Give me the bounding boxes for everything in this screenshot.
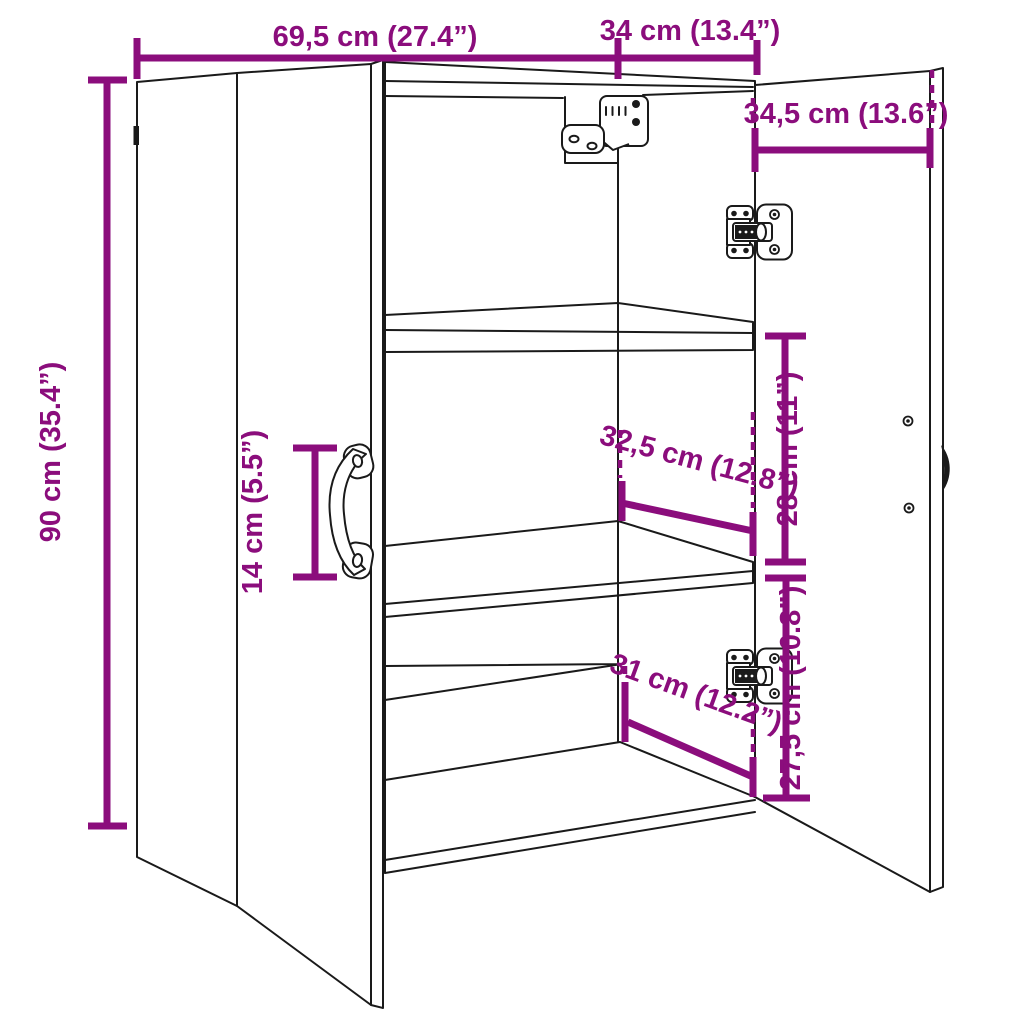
dim-height-label: 90 cm (35.4”): [35, 362, 67, 543]
cabinet-top-edge: [385, 62, 755, 98]
dim-top-right-width-label: 34 cm (13.4”): [600, 15, 781, 47]
product-dimension-diagram: 69,5 cm (27.4”) 34 cm (13.4”) 34,5 cm (1…: [0, 0, 1024, 1024]
dim-shelf-gap-upper-label: 28 cm (11”): [772, 372, 804, 527]
left-door-edge: [371, 60, 383, 1008]
left-door-side-panel: [137, 73, 237, 906]
dim-door-width-label: 34,5 cm (13.6”): [744, 98, 949, 130]
dim-top-right-width: 34 cm (13.4”): [600, 15, 781, 75]
bottom-panel: [385, 742, 755, 873]
dim-shelf-gap-lower-label: 27,5 cm (10.8”): [775, 586, 807, 791]
door-edge-catch: [134, 126, 140, 145]
bracket-plate: [600, 96, 648, 146]
bracket-arm: [562, 125, 604, 153]
shelf-lower: [385, 521, 753, 617]
dim-height: 90 cm (35.4”): [35, 80, 127, 826]
shelf-upper: [385, 303, 753, 352]
back-rail-lines: [385, 664, 622, 700]
dim-handle-length-label: 14 cm (5.5”): [237, 430, 269, 594]
wall-mount-bracket: [562, 96, 648, 163]
right-door-edge: [930, 68, 943, 892]
hinge-top: [727, 205, 792, 260]
product-image: 69,5 cm (27.4”) 34 cm (13.4”) 34,5 cm (1…: [0, 0, 1024, 1024]
dim-total-width-label: 69,5 cm (27.4”): [273, 21, 478, 53]
